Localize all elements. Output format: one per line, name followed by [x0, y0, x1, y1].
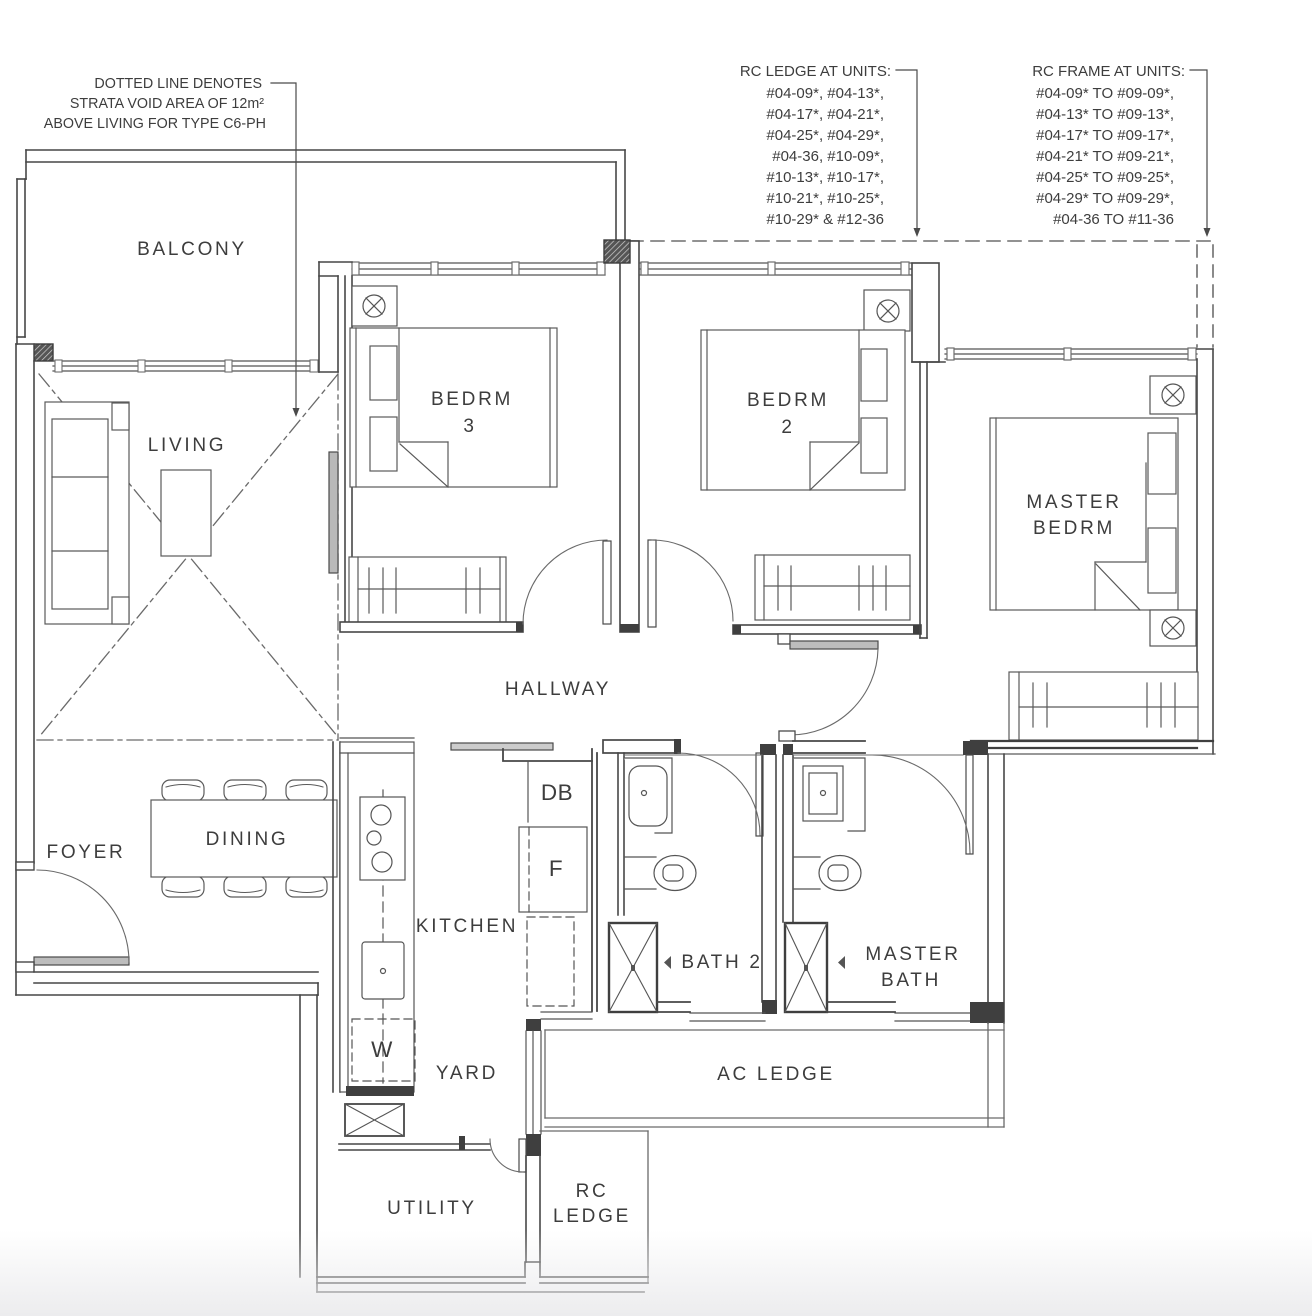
svg-text:YARD: YARD — [436, 1063, 498, 1084]
svg-text:DOTTED LINE DENOTES: DOTTED LINE DENOTES — [94, 76, 262, 92]
svg-text:#04-25* TO #09-25*,: #04-25* TO #09-25*, — [1036, 169, 1174, 186]
svg-text:#04-36 TO #11-36: #04-36 TO #11-36 — [1053, 211, 1174, 228]
svg-text:#04-13* TO #09-13*,: #04-13* TO #09-13*, — [1036, 106, 1174, 123]
svg-text:#04-17*, #04-21*,: #04-17*, #04-21*, — [766, 106, 884, 123]
svg-text:3: 3 — [463, 416, 476, 437]
svg-text:STRATA VOID AREA OF 12m²: STRATA VOID AREA OF 12m² — [70, 96, 264, 112]
svg-text:KITCHEN: KITCHEN — [416, 916, 518, 937]
svg-text:RC: RC — [576, 1181, 609, 1202]
svg-text:#04-36, #10-09*,: #04-36, #10-09*, — [772, 148, 884, 165]
svg-text:BEDRM: BEDRM — [1033, 518, 1115, 539]
svg-text:LEDGE: LEDGE — [553, 1206, 631, 1227]
svg-text:2: 2 — [781, 417, 794, 438]
svg-text:RC LEDGE AT UNITS:: RC LEDGE AT UNITS: — [740, 63, 891, 80]
svg-text:DINING: DINING — [206, 829, 289, 850]
svg-text:HALLWAY: HALLWAY — [505, 679, 611, 700]
svg-text:DB: DB — [541, 780, 573, 805]
svg-text:BEDRM: BEDRM — [431, 389, 513, 410]
svg-text:BEDRM: BEDRM — [747, 390, 829, 411]
svg-text:RC FRAME AT UNITS:: RC FRAME AT UNITS: — [1032, 63, 1185, 80]
svg-text:#04-09*, #04-13*,: #04-09*, #04-13*, — [766, 85, 884, 102]
svg-text:#04-25*, #04-29*,: #04-25*, #04-29*, — [766, 127, 884, 144]
svg-text:ABOVE LIVING FOR TYPE C6-PH: ABOVE LIVING FOR TYPE C6-PH — [44, 116, 266, 132]
svg-text:BALCONY: BALCONY — [137, 239, 247, 260]
svg-text:#04-09* TO #09-09*,: #04-09* TO #09-09*, — [1036, 85, 1174, 102]
svg-text:UTILITY: UTILITY — [387, 1198, 477, 1219]
svg-text:MASTER: MASTER — [865, 944, 960, 965]
svg-text:#10-13*, #10-17*,: #10-13*, #10-17*, — [766, 169, 884, 186]
svg-text:#04-21* TO #09-21*,: #04-21* TO #09-21*, — [1036, 148, 1174, 165]
svg-text:#04-17* TO #09-17*,: #04-17* TO #09-17*, — [1036, 127, 1174, 144]
svg-text:LIVING: LIVING — [148, 435, 227, 456]
svg-text:#04-29* TO #09-29*,: #04-29* TO #09-29*, — [1036, 190, 1174, 207]
svg-text:BATH 2: BATH 2 — [681, 952, 762, 973]
svg-text:MASTER: MASTER — [1026, 492, 1121, 513]
svg-text:BATH: BATH — [881, 970, 941, 991]
svg-text:W: W — [371, 1037, 393, 1062]
svg-text:#10-21*, #10-25*,: #10-21*, #10-25*, — [766, 190, 884, 207]
svg-text:AC LEDGE: AC LEDGE — [717, 1064, 835, 1085]
svg-text:#10-29* & #12-36: #10-29* & #12-36 — [766, 211, 884, 228]
svg-text:FOYER: FOYER — [47, 842, 126, 863]
svg-text:F: F — [549, 856, 563, 881]
